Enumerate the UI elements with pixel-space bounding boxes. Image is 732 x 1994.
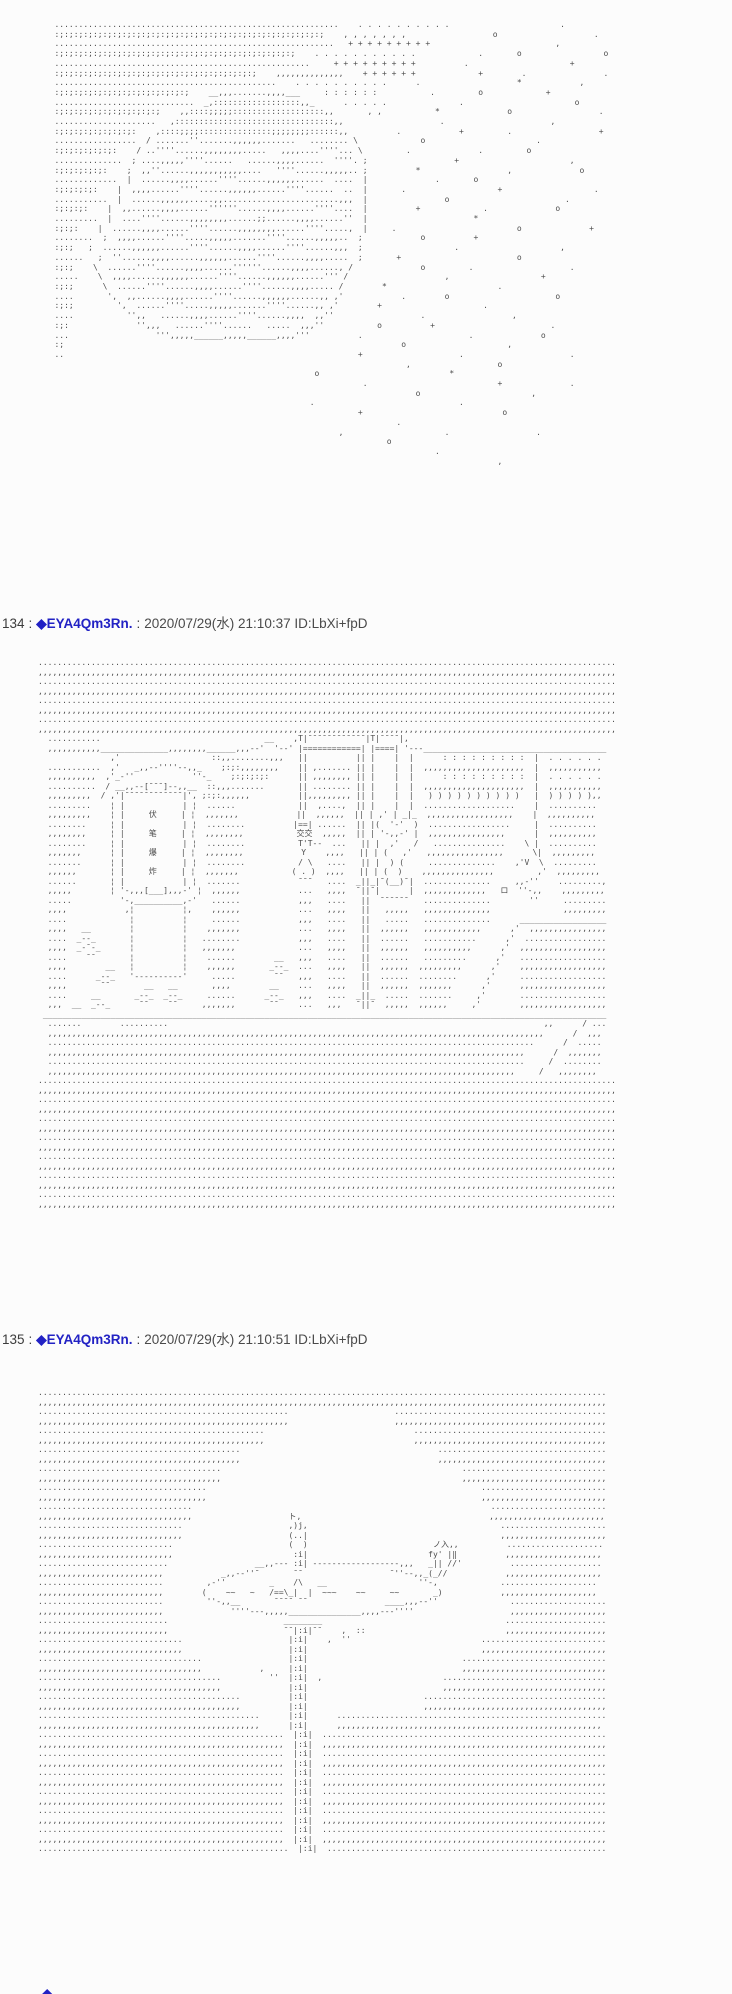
separator: : [132, 1332, 144, 1347]
post-number: 135 [2, 1332, 25, 1347]
post-number: 134 [2, 616, 25, 631]
post-id-value: ID:LbXi+fpD [294, 1332, 367, 1347]
separator: : [25, 616, 37, 631]
ascii-art-tree-platform-scene: ........................................… [38, 1388, 606, 1854]
ascii-art-street-scene-sign: ........................................… [38, 658, 616, 1209]
post-id-value: ID:LbXi+fpD [294, 616, 367, 631]
poster-tripcode: ◆EYA4Qm3Rn. [36, 616, 132, 631]
next-post-diamond-icon-partial: ◆ [42, 1986, 52, 1994]
poster-tripcode: ◆EYA4Qm3Rn. [36, 1332, 132, 1347]
post-datetime: 2020/07/29(水) 21:10:51 [144, 1332, 290, 1347]
separator: : [25, 1332, 37, 1347]
ascii-art-moon-and-stars: ........................................… [40, 20, 608, 466]
separator: : [132, 616, 144, 631]
post-header-135: 135:◆EYA4Qm3Rn.:2020/07/29(水) 21:10:51 I… [2, 1328, 368, 1348]
post-header-134: 134:◆EYA4Qm3Rn.:2020/07/29(水) 21:10:37 I… [2, 612, 368, 632]
thread-page: ........................................… [0, 0, 732, 1994]
post-datetime: 2020/07/29(水) 21:10:37 [144, 616, 290, 631]
